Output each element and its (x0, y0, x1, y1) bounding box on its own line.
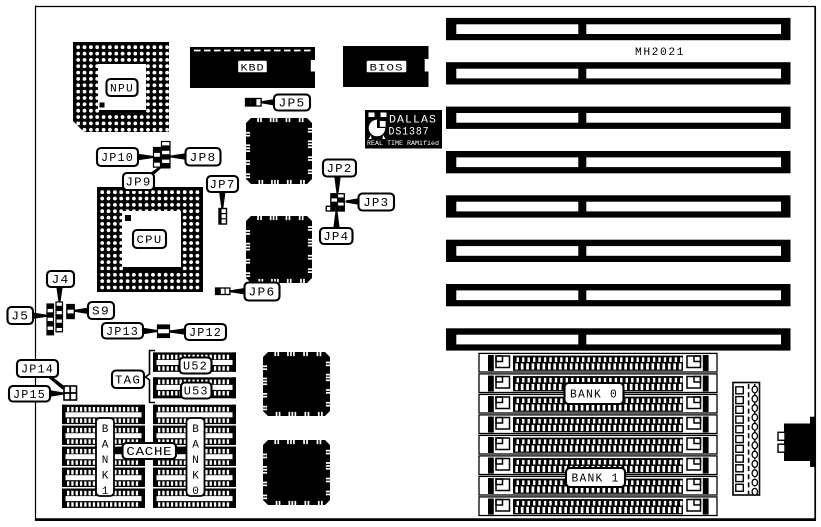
svg-text:JP7: JP7 (210, 178, 236, 192)
svg-text:A: A (192, 440, 199, 452)
svg-text:REAL TIME RAMified: REAL TIME RAMified (367, 140, 439, 147)
svg-text:N: N (192, 455, 199, 467)
svg-text:1: 1 (102, 486, 109, 498)
svg-text:B: B (102, 424, 109, 436)
svg-text:KBD: KBD (241, 64, 265, 75)
svg-text:BANK 0: BANK 0 (570, 389, 618, 402)
svg-text:DS1387: DS1387 (389, 127, 430, 139)
svg-text:MH2021: MH2021 (635, 47, 685, 59)
svg-text:B: B (192, 424, 199, 436)
svg-text:0: 0 (192, 486, 199, 498)
svg-text:DALLAS: DALLAS (389, 115, 437, 127)
svg-text:JP12: JP12 (189, 326, 222, 340)
svg-text:BANK 1: BANK 1 (572, 473, 620, 486)
svg-text:TAG: TAG (115, 373, 141, 387)
svg-text:JP14: JP14 (21, 363, 54, 377)
svg-text:J4: J4 (52, 273, 70, 287)
svg-text:JP4: JP4 (323, 230, 349, 244)
svg-text:K: K (192, 471, 199, 483)
svg-text:JP8: JP8 (190, 151, 217, 165)
svg-text:CPU: CPU (137, 235, 163, 247)
svg-text:JP6: JP6 (249, 286, 276, 300)
svg-text:NPU: NPU (110, 84, 134, 96)
svg-text:S9: S9 (92, 305, 110, 319)
svg-text:JP3: JP3 (363, 196, 389, 210)
svg-text:CACHE: CACHE (126, 445, 172, 459)
svg-text:A: A (102, 440, 109, 452)
svg-text:U53: U53 (184, 385, 209, 399)
svg-text:JP13: JP13 (106, 325, 139, 339)
svg-text:JP10: JP10 (101, 151, 134, 165)
svg-text:N: N (102, 455, 109, 467)
svg-text:K: K (102, 471, 109, 483)
svg-text:U52: U52 (183, 360, 208, 374)
svg-text:JP5: JP5 (279, 97, 306, 111)
svg-text:BIOS: BIOS (370, 64, 404, 75)
svg-text:J5: J5 (11, 310, 29, 324)
svg-text:JP15: JP15 (13, 388, 46, 402)
svg-text:JP9: JP9 (126, 176, 152, 190)
svg-text:JP2: JP2 (327, 162, 353, 176)
